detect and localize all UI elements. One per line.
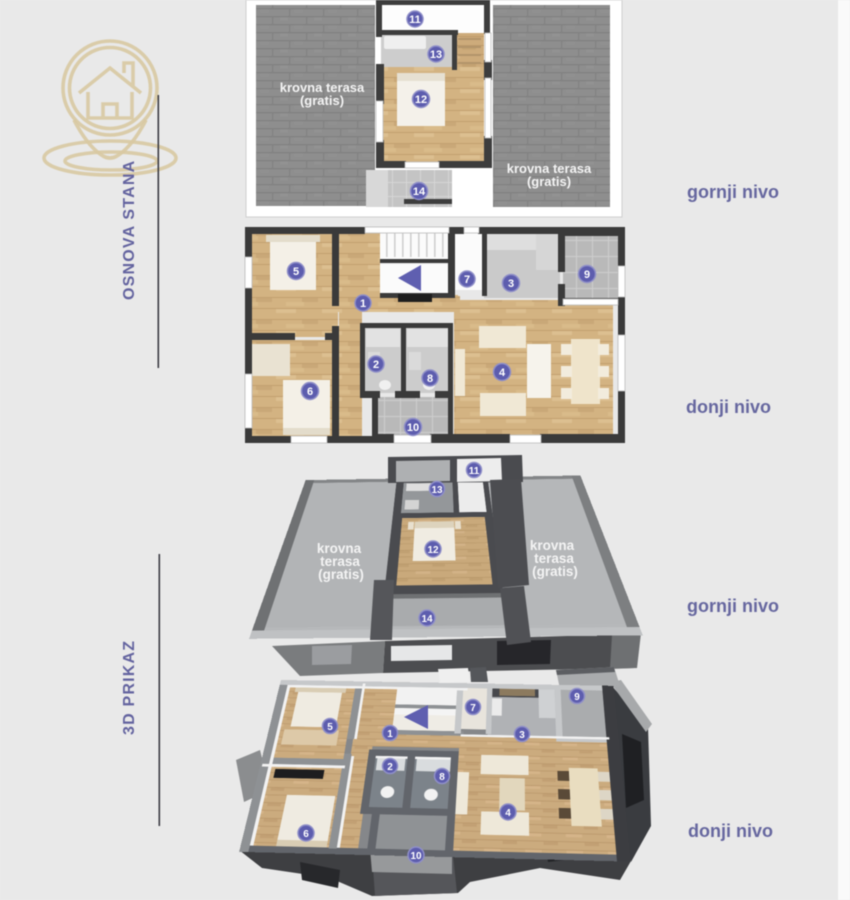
svg-text:(gratis): (gratis) bbox=[318, 567, 364, 582]
svg-text:1: 1 bbox=[387, 729, 393, 740]
svg-text:13: 13 bbox=[431, 485, 443, 496]
svg-text:(gratis): (gratis) bbox=[532, 564, 578, 579]
svg-text:10: 10 bbox=[410, 851, 422, 862]
svg-text:2: 2 bbox=[387, 762, 393, 773]
svg-text:14: 14 bbox=[421, 614, 433, 625]
svg-text:12: 12 bbox=[427, 545, 439, 556]
svg-text:4: 4 bbox=[505, 808, 511, 819]
svg-text:3: 3 bbox=[519, 730, 525, 741]
svg-text:6: 6 bbox=[303, 829, 309, 840]
svg-text:5: 5 bbox=[327, 722, 333, 733]
svg-text:9: 9 bbox=[574, 692, 580, 703]
svg-text:11: 11 bbox=[469, 466, 480, 477]
svg-text:7: 7 bbox=[470, 703, 476, 714]
svg-text:8: 8 bbox=[439, 772, 445, 783]
